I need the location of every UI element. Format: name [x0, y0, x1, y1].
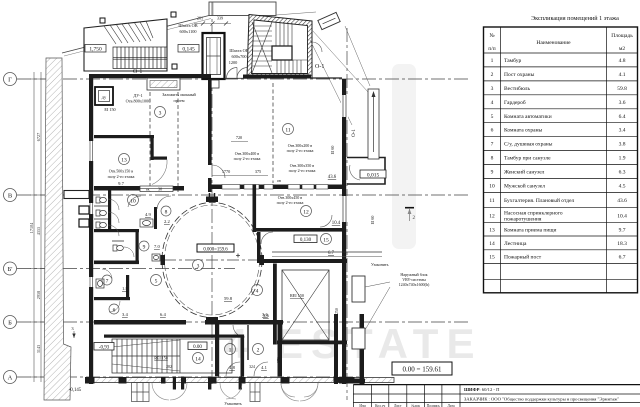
svg-text:4355: 4355 — [36, 227, 41, 235]
svg-text:14: 14 — [489, 241, 495, 247]
svg-text:8: 8 — [491, 156, 494, 162]
svg-text:6.4: 6.4 — [619, 114, 626, 120]
svg-text:EI 150: EI 150 — [104, 107, 115, 112]
svg-text:Комната охраны: Комната охраны — [504, 128, 543, 134]
svg-text:А: А — [8, 375, 13, 382]
svg-text:Лестница: Лестница — [504, 241, 527, 247]
svg-text:Шахта ОВ: Шахта ОВ — [178, 23, 197, 28]
svg-text:6: 6 — [113, 308, 116, 314]
svg-text:м2: м2 — [619, 46, 625, 52]
svg-text:6.7: 6.7 — [619, 255, 626, 261]
svg-text:Узаконить: Узаконить — [224, 401, 242, 406]
svg-text:600х700: 600х700 — [231, 54, 246, 59]
svg-text:3: 3 — [159, 111, 162, 117]
svg-text:О-1: О-1 — [315, 64, 324, 70]
svg-text:1.8: 1.8 — [122, 286, 128, 291]
svg-text:Пост охраны: Пост охраны — [504, 72, 535, 78]
svg-text:1240х740х1600(h): 1240х740х1600(h) — [399, 282, 430, 287]
svg-text:9.7: 9.7 — [118, 181, 124, 186]
svg-text:0,145: 0,145 — [182, 47, 195, 53]
svg-text:2: 2 — [491, 72, 494, 78]
svg-text:Наименование: Наименование — [536, 40, 571, 46]
svg-text:59.8: 59.8 — [617, 86, 627, 92]
svg-text:-0,145: -0,145 — [69, 388, 82, 393]
svg-text:Пожарный пост: Пожарный пост — [504, 254, 542, 261]
svg-text:Насосная спринклерного: Насосная спринклерного — [504, 211, 563, 217]
svg-text:Г: Г — [8, 77, 12, 84]
svg-text:3: 3 — [71, 326, 74, 331]
svg-text:п/п: п/п — [488, 46, 495, 52]
svg-text:В: В — [8, 193, 13, 200]
svg-text:полу 2-го этажа: полу 2-го этажа — [277, 200, 304, 205]
svg-text:261: 261 — [197, 16, 203, 21]
svg-text:0,130: 0,130 — [300, 238, 312, 243]
svg-text:10.4: 10.4 — [332, 221, 341, 226]
svg-text:43.6: 43.6 — [328, 175, 337, 180]
svg-text:№: № — [489, 33, 494, 39]
svg-text:Б': Б' — [8, 266, 13, 273]
svg-text:6: 6 — [491, 128, 494, 134]
svg-text:Узаконить: Узаконить — [371, 262, 389, 267]
svg-text:8: 8 — [165, 210, 168, 216]
svg-text:30: 30 — [158, 187, 162, 192]
svg-text:3: 3 — [197, 264, 200, 270]
svg-text:1200: 1200 — [229, 60, 238, 65]
svg-text:4: 4 — [256, 289, 259, 295]
svg-text:282: 282 — [166, 365, 172, 369]
svg-text:3: 3 — [491, 86, 494, 92]
svg-text:12: 12 — [489, 213, 495, 219]
svg-text:11: 11 — [285, 128, 291, 134]
svg-text:6.3: 6.3 — [619, 170, 626, 176]
svg-text:ШИФР: 60/12 - П: ШИФР: 60/12 - П — [464, 387, 500, 392]
svg-text:полу 2-го этажа: полу 2-го этажа — [108, 174, 135, 179]
svg-text:Площадь: Площадь — [611, 33, 633, 39]
svg-text:3143: 3143 — [36, 345, 41, 353]
svg-text:полу 2-го этажа: полу 2-го этажа — [289, 168, 316, 173]
svg-text:Б: Б — [8, 320, 12, 327]
svg-text:15: 15 — [489, 255, 495, 261]
svg-text:Бухгалтерия. Плановый отдел: Бухгалтерия. Плановый отдел — [504, 197, 575, 204]
svg-text:12: 12 — [303, 210, 309, 216]
svg-text:полу 2-го этажа: полу 2-го этажа — [234, 156, 261, 161]
svg-text:1.9: 1.9 — [619, 156, 626, 162]
svg-text:О-1: О-1 — [352, 129, 357, 137]
svg-text:С/у, душевая охраны: С/у, душевая охраны — [504, 142, 553, 148]
svg-text:REI 150: REI 150 — [290, 293, 304, 298]
svg-text:Вестибюль: Вестибюль — [504, 85, 531, 92]
svg-text:15: 15 — [323, 238, 329, 244]
svg-text:1: 1 — [491, 58, 494, 64]
svg-text:1250: 1250 — [335, 308, 339, 316]
svg-text:3.8: 3.8 — [619, 142, 626, 148]
svg-text:5: 5 — [491, 114, 494, 120]
svg-text:Тамбур при санузле: Тамбур при санузле — [504, 155, 551, 162]
svg-text:Комната автоматики: Комната автоматики — [504, 114, 552, 120]
svg-text:полу 2-го этажа: полу 2-го этажа — [287, 148, 314, 153]
svg-text:2958: 2958 — [36, 291, 41, 299]
svg-text:EI 60: EI 60 — [330, 146, 335, 155]
svg-text:Шахта ОВ: Шахта ОВ — [229, 48, 248, 53]
svg-text:4: 4 — [491, 100, 494, 106]
svg-text:Тамбур: Тамбур — [504, 57, 521, 64]
svg-text:4.9: 4.9 — [145, 212, 151, 217]
svg-text:3.6: 3.6 — [619, 100, 626, 106]
svg-text:проем: проем — [174, 98, 185, 103]
svg-text:720: 720 — [236, 135, 242, 140]
svg-text:11: 11 — [489, 198, 495, 204]
svg-text:Гардероб: Гардероб — [504, 99, 526, 106]
svg-text:2.2: 2.2 — [164, 219, 170, 224]
svg-text:Отв.500х150 в: Отв.500х150 в — [109, 169, 134, 174]
svg-text:10.4: 10.4 — [617, 213, 627, 219]
svg-text:13: 13 — [489, 227, 495, 233]
svg-text:0.00: 0.00 — [193, 345, 202, 350]
svg-text:Заложить оконный: Заложить оконный — [162, 92, 196, 97]
svg-text:Экспликация помещений 1 этажа: Экспликация помещений 1 этажа — [531, 15, 619, 22]
svg-text:339: 339 — [217, 16, 223, 21]
svg-text:9: 9 — [491, 170, 494, 176]
svg-text:5: 5 — [155, 279, 158, 285]
svg-text:9: 9 — [143, 245, 146, 251]
svg-text:6.4: 6.4 — [160, 312, 166, 317]
svg-text:Отв.800х1000: Отв.800х1000 — [126, 99, 151, 104]
svg-text:4.1: 4.1 — [619, 72, 626, 78]
svg-text:13: 13 — [121, 158, 127, 164]
svg-text:600х1100: 600х1100 — [179, 29, 196, 34]
svg-text:324: 324 — [249, 365, 255, 369]
svg-text:0.00 = 159.61: 0.00 = 159.61 — [403, 366, 442, 374]
svg-text:3.4: 3.4 — [122, 312, 128, 317]
svg-text:6727: 6727 — [36, 133, 41, 141]
svg-text:ду: ду — [102, 95, 107, 100]
svg-text:0,015: 0,015 — [367, 173, 380, 179]
svg-text:7: 7 — [491, 142, 494, 148]
svg-text:4.5: 4.5 — [619, 184, 626, 190]
svg-text:7.0: 7.0 — [154, 244, 160, 249]
svg-text:Комната приема пищи: Комната приема пищи — [504, 227, 557, 233]
svg-text:43.6: 43.6 — [617, 198, 627, 204]
svg-text:10: 10 — [489, 184, 495, 190]
svg-text:14: 14 — [195, 357, 201, 363]
svg-text:9.7: 9.7 — [619, 227, 626, 233]
svg-text:4.8: 4.8 — [619, 58, 626, 64]
svg-text:Женский санузел: Женский санузел — [504, 169, 545, 176]
svg-text:375: 375 — [255, 169, 261, 174]
svg-text:-0,93: -0,93 — [99, 346, 110, 351]
svg-text:ДУ-1: ДУ-1 — [133, 93, 142, 98]
svg-text:3.4: 3.4 — [619, 128, 626, 134]
svg-text:0.000=159.6: 0.000=159.6 — [203, 248, 228, 253]
svg-text:1,750: 1,750 — [89, 47, 102, 53]
svg-text:ов: ов — [277, 178, 281, 183]
svg-text:1: 1 — [229, 348, 232, 354]
svg-text:17104: 17104 — [29, 222, 34, 233]
svg-text:3.6: 3.6 — [262, 312, 268, 317]
svg-text:EI 60: EI 60 — [370, 216, 375, 225]
svg-text:2: 2 — [257, 348, 260, 354]
svg-text:4.1: 4.1 — [261, 365, 267, 370]
svg-text:59.8: 59.8 — [224, 296, 233, 301]
svg-text:370: 370 — [277, 357, 281, 363]
svg-text:вк: вк — [146, 188, 150, 192]
svg-text:1770: 1770 — [222, 169, 230, 174]
svg-text:REI 150: REI 150 — [154, 356, 167, 361]
svg-text:ЗАКАЗЧИК : ООО "Общество подд: ЗАКАЗЧИК : ООО "Общество поддержки культ… — [464, 397, 619, 402]
svg-text:пожаротушения: пожаротушения — [504, 217, 542, 223]
svg-text:7: 7 — [106, 279, 109, 285]
svg-text:18.3: 18.3 — [617, 241, 627, 247]
svg-text:10: 10 — [130, 199, 136, 205]
svg-text:Мужской санузел: Мужской санузел — [504, 183, 545, 190]
